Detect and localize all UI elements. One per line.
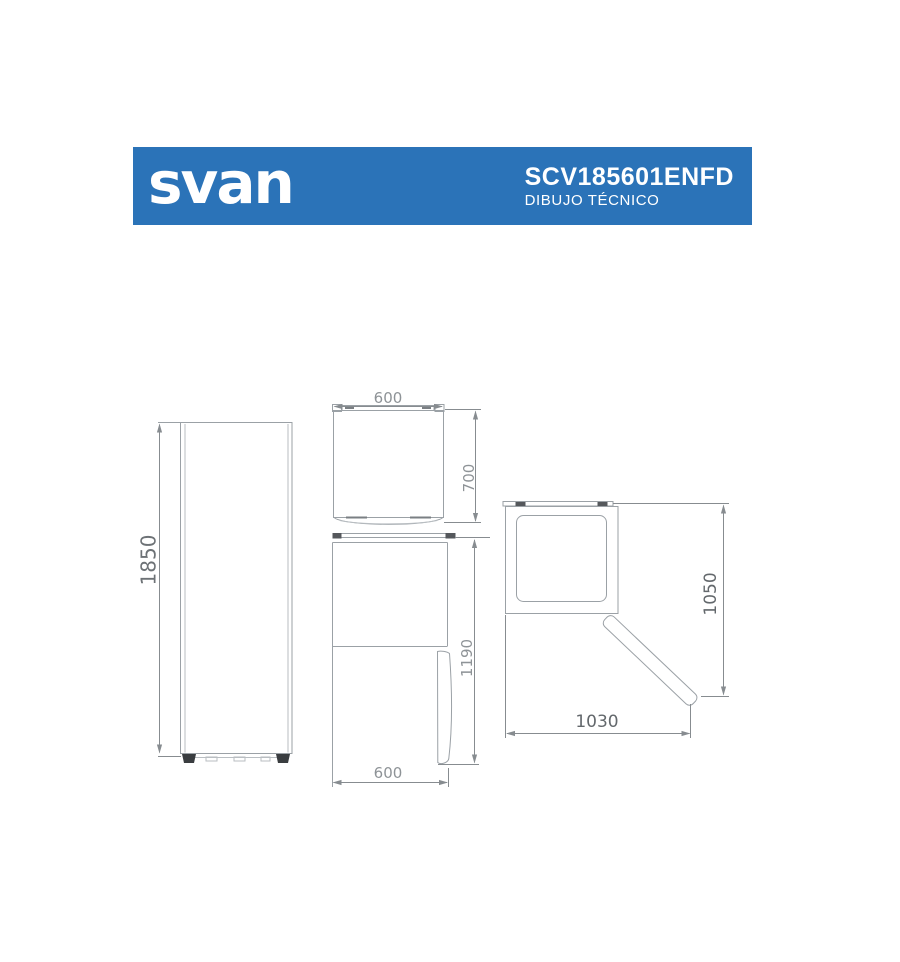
cabinet-inner-outline <box>517 516 607 602</box>
open-door <box>601 614 699 708</box>
dim-width-1030: 1030 <box>506 615 691 738</box>
drawing-canvas: 1850 600 <box>0 0 900 962</box>
arrow-down <box>721 687 726 696</box>
top-view-door-open: 1030 1050 <box>503 502 729 739</box>
arrow-right <box>439 780 448 785</box>
dim-label-depth: 700 <box>460 464 478 493</box>
arrow-left <box>333 780 342 785</box>
hinge-detail <box>516 502 526 506</box>
front-left-foot <box>182 754 196 763</box>
dim-width-600: 600 <box>334 389 444 409</box>
door-edge-detail <box>410 517 431 519</box>
front-right-foot <box>276 754 290 763</box>
dim-depth-600: 600 <box>333 764 449 787</box>
hinge-detail <box>598 502 608 506</box>
hinge-block-left <box>333 533 342 539</box>
dim-label-depth: 1050 <box>701 572 721 615</box>
arrow-up <box>721 505 726 514</box>
technical-drawing-page: svan SCV185601ENFD DIBUJO TÉCNICO 18 <box>0 0 900 962</box>
arrow-down <box>472 755 477 764</box>
arrow-left <box>506 731 515 736</box>
front-body-outline <box>181 423 293 754</box>
dim-height-1190: 1190 <box>438 538 490 765</box>
hinge-block-right <box>446 533 456 539</box>
arrow-right <box>682 731 691 736</box>
cabinet-outline <box>334 411 444 518</box>
arrow-up <box>157 424 162 433</box>
dim-label-width: 1030 <box>575 712 618 732</box>
side-view: 1190 600 <box>333 533 491 787</box>
dim-label-height: 1850 <box>137 535 161 586</box>
dim-depth-700: 700 <box>444 410 481 523</box>
door-profile <box>438 651 452 763</box>
arrow-up <box>472 539 477 548</box>
top-panel-bar <box>340 534 455 538</box>
door-edge-detail <box>346 517 367 519</box>
dim-depth-1050: 1050 <box>613 504 729 697</box>
front-side-inner-lines <box>185 424 288 753</box>
dim-label-width: 600 <box>374 389 403 407</box>
dim-height-1850: 1850 <box>137 424 182 757</box>
dim-label-height: 1190 <box>458 639 476 677</box>
top-view-closed: 600 700 <box>333 389 482 524</box>
arrow-up <box>473 411 478 420</box>
front-view: 1850 <box>137 423 293 764</box>
arrow-down <box>473 513 478 522</box>
arrow-down <box>157 745 162 754</box>
cabinet-outline <box>506 507 619 614</box>
dim-label-depth: 600 <box>374 764 403 782</box>
